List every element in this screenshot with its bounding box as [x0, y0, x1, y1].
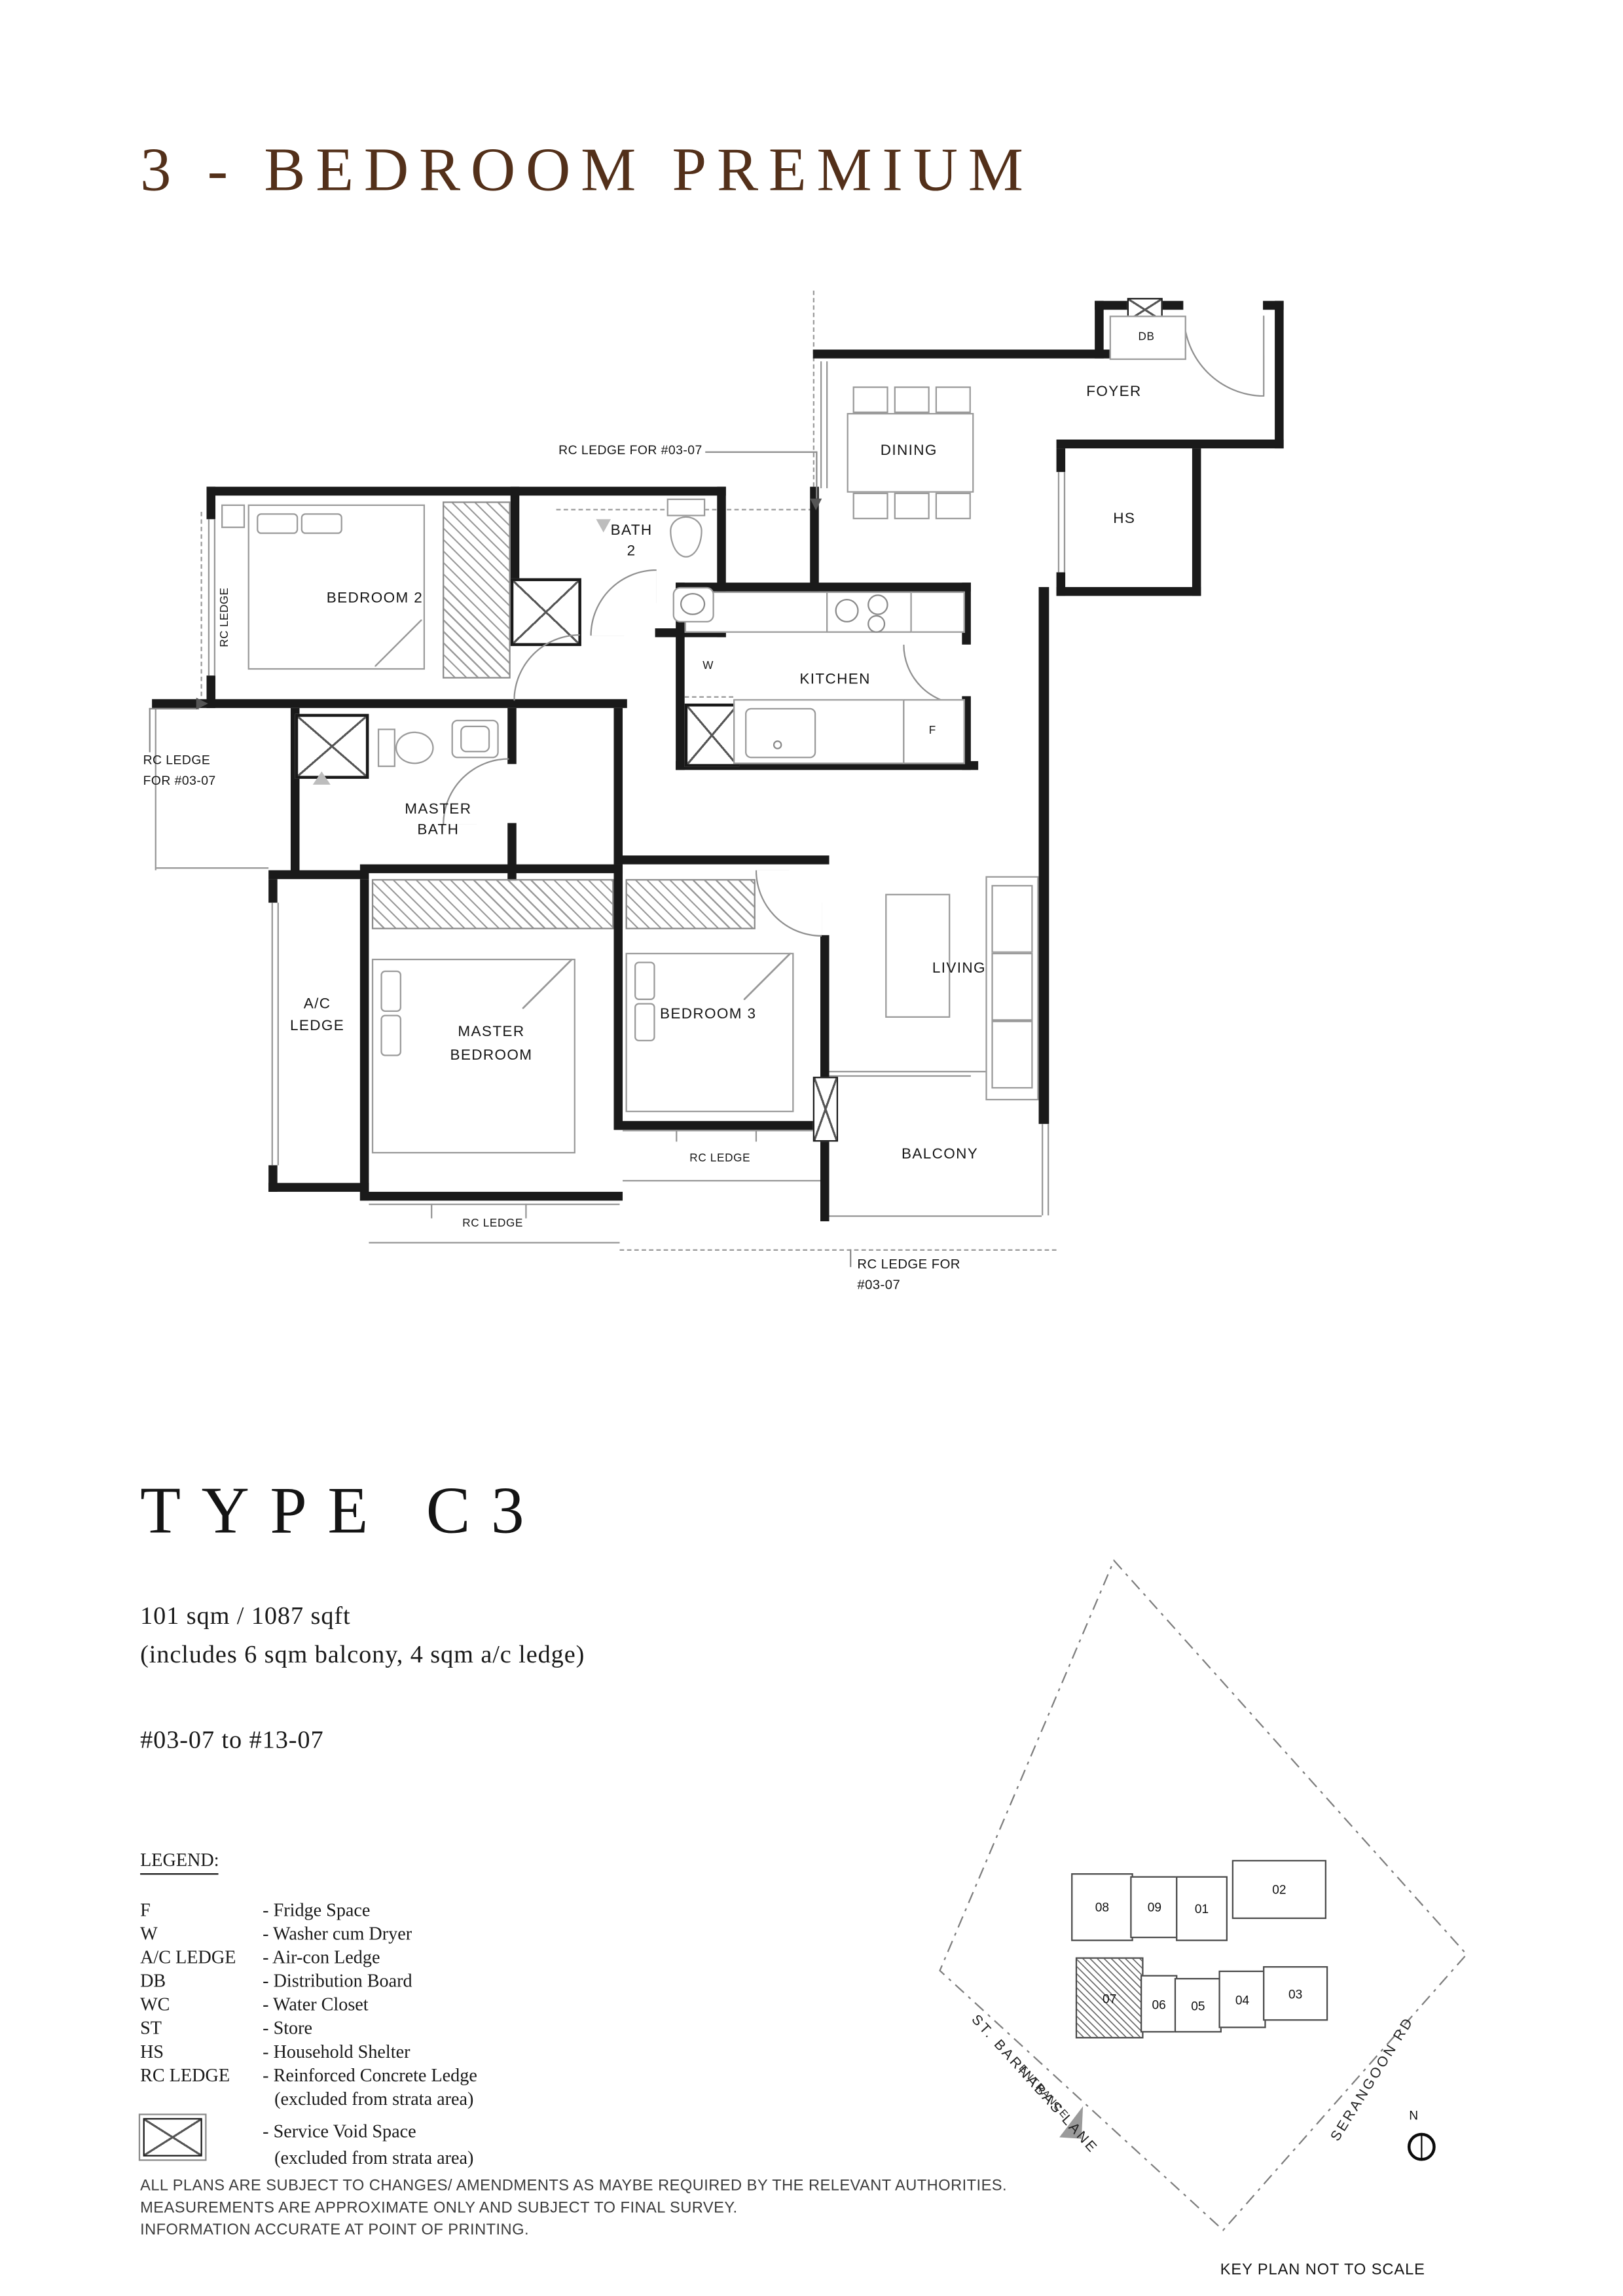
disclaimer-line: ALL PLANS ARE SUBJECT TO CHANGES/ AMENDM… — [140, 2177, 1007, 2195]
keyplan-unit-05: 05 — [1175, 1978, 1222, 2032]
keyplan-unit-06: 06 — [1140, 1975, 1177, 2033]
keyplan-unit-02: 02 — [1232, 1860, 1326, 1919]
disclaimer-line: MEASUREMENTS ARE APPROXIMATE ONLY AND SU… — [140, 2199, 737, 2217]
keyplan-note: KEY PLAN NOT TO SCALE — [1220, 2261, 1425, 2279]
keyplan-unit-03: 03 — [1263, 1966, 1328, 2020]
north-label: N — [1409, 2108, 1418, 2123]
leader-arrowhead-icon — [810, 499, 822, 511]
shower-marker-icon — [596, 519, 611, 532]
vent-marker-icon — [313, 772, 331, 785]
keyplan-unit-01: 01 — [1176, 1876, 1228, 1941]
brochure-page: 3 - BEDROOM PREMIUM — [0, 0, 1623, 2295]
keyplan-unit-08: 08 — [1071, 1873, 1133, 1941]
keyplan-unit-09: 09 — [1130, 1876, 1178, 1939]
leader-arrowhead-icon — [196, 698, 208, 709]
key-plan-graphics — [0, 0, 1623, 2295]
disclaimer-line: INFORMATION ACCURATE AT POINT OF PRINTIN… — [140, 2221, 529, 2239]
keyplan-unit-04: 04 — [1218, 1971, 1266, 2028]
keyplan-unit-07-highlighted: 07 — [1076, 1958, 1144, 2039]
north-arrow-icon — [1408, 2133, 1436, 2161]
